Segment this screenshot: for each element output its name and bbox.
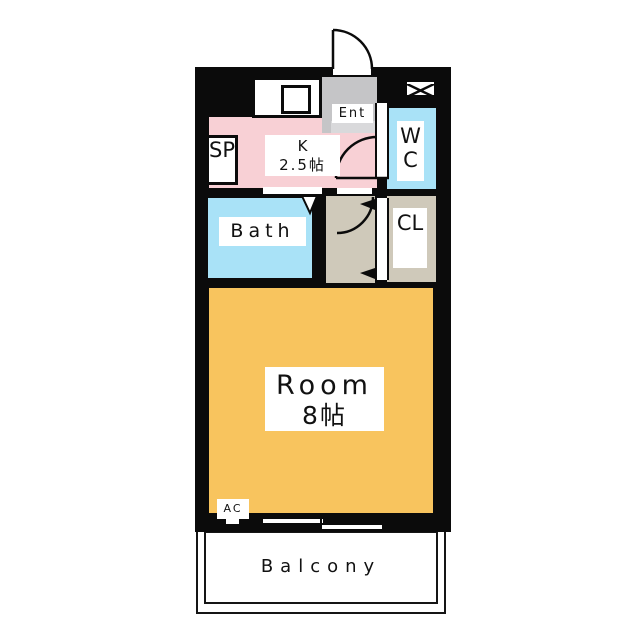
kitchen-label-letter: K — [265, 137, 340, 156]
main-room-label: Room 8帖 — [265, 367, 384, 431]
kitchen-size-label: 2.5帖 — [265, 156, 340, 175]
ac-label: AC — [217, 499, 249, 519]
entrance-door-opening — [333, 67, 371, 77]
floor-plan: Balcony SP K 2.5 — [0, 0, 640, 640]
bath-door-opening — [263, 187, 322, 196]
x-cross-icon — [407, 84, 434, 97]
wc-door-leaf — [375, 103, 389, 178]
main-room-size-label: 8帖 — [265, 402, 384, 430]
balcony-label: Balcony — [204, 556, 438, 577]
entrance-door-arc-icon — [333, 30, 372, 69]
closet-sliding-door — [375, 198, 389, 280]
closet-label: CL — [393, 208, 427, 268]
hallway-floor — [326, 196, 375, 283]
pipe-space-x-icon — [403, 78, 438, 99]
wc-label: WC — [397, 121, 424, 181]
bath-label: Bath — [219, 217, 306, 246]
kitchen-label: K 2.5帖 — [265, 135, 340, 176]
entrance-label: Ent — [332, 104, 373, 123]
kitchen-sink — [281, 85, 311, 114]
service-space-label: SP — [206, 135, 238, 185]
window-pane-right — [321, 524, 383, 530]
window-pane-left — [262, 518, 324, 524]
main-room-label-text: Room — [265, 367, 384, 402]
hallway-door-opening — [337, 188, 372, 196]
